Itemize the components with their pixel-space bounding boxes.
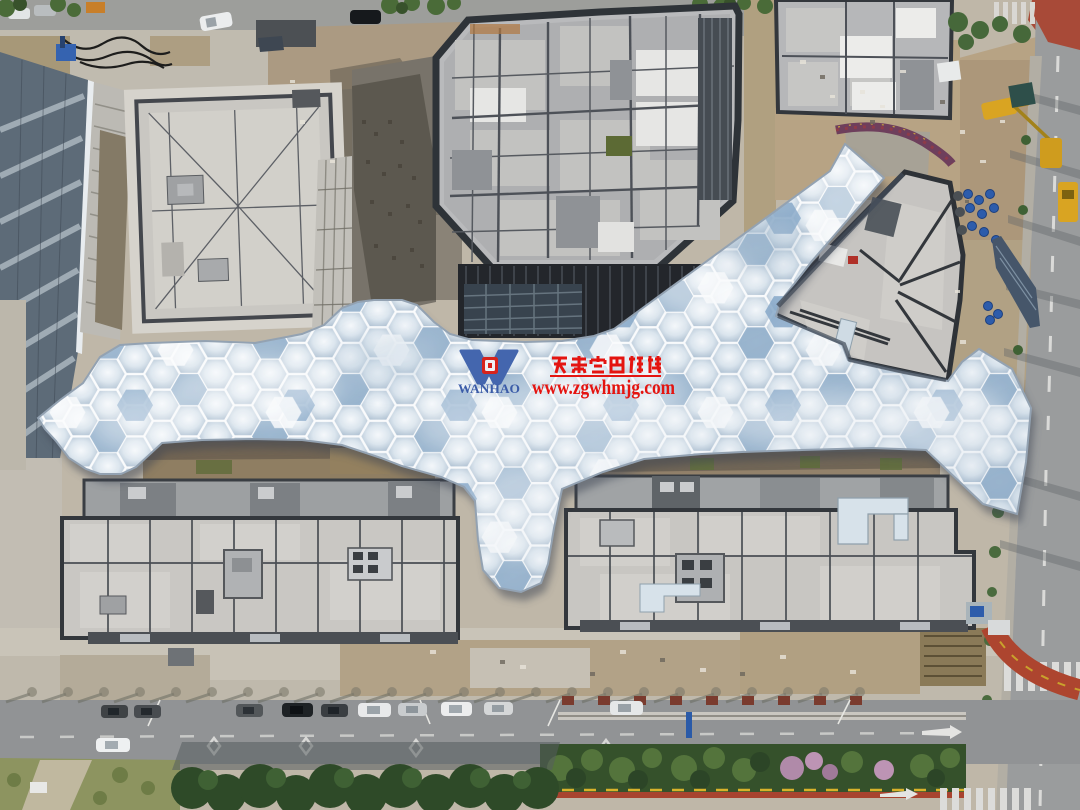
svg-text:WANHAO: WANHAO (458, 381, 520, 396)
svg-text:www.zgwhmjg.com: www.zgwhmjg.com (532, 375, 675, 399)
